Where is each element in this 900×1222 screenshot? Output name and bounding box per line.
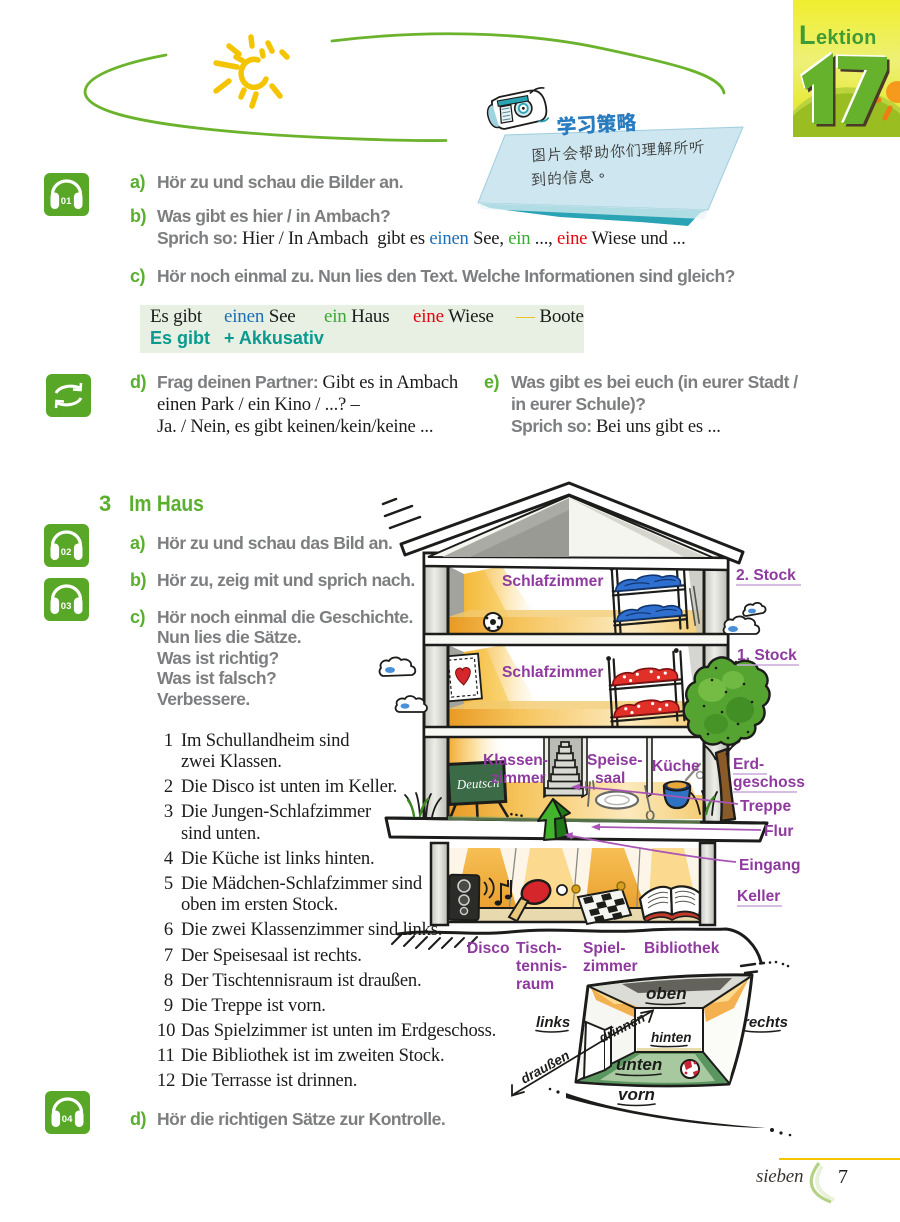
svg-text:Eingang: Eingang xyxy=(739,857,801,874)
svg-text:Klassen-: Klassen- xyxy=(483,752,548,769)
svg-text:Keller: Keller xyxy=(737,888,780,905)
svg-text:01: 01 xyxy=(61,196,72,207)
svg-text:zimmer: zimmer xyxy=(491,770,546,787)
svg-text:03: 03 xyxy=(61,601,72,612)
svg-text:oben: oben xyxy=(646,984,687,1003)
svg-text:Flur: Flur xyxy=(764,823,793,840)
svg-text:Erd-: Erd- xyxy=(733,756,764,773)
svg-text:tennis-: tennis- xyxy=(516,958,567,975)
svg-text:Schlafzimmer: Schlafzimmer xyxy=(502,664,603,681)
svg-text:Spiel-: Spiel- xyxy=(583,940,625,957)
svg-text:Disco: Disco xyxy=(467,940,509,957)
svg-text:Treppe: Treppe xyxy=(740,798,791,815)
svg-text:ektion: ektion xyxy=(816,27,877,49)
svg-text:unten: unten xyxy=(616,1055,662,1074)
svg-text:1. Stock: 1. Stock xyxy=(737,647,797,664)
svg-text:04: 04 xyxy=(62,1114,73,1125)
svg-text:Tisch-: Tisch- xyxy=(516,940,562,957)
svg-text:Schlafzimmer: Schlafzimmer xyxy=(502,573,603,590)
svg-text:rechts: rechts xyxy=(743,1014,788,1031)
svg-text:raum: raum xyxy=(516,976,554,993)
svg-text:02: 02 xyxy=(61,547,72,558)
svg-text:L: L xyxy=(799,20,816,50)
svg-text:2. Stock: 2. Stock xyxy=(736,567,796,584)
svg-text:draußen: draußen xyxy=(518,1048,572,1087)
svg-text:links: links xyxy=(536,1014,570,1031)
svg-text:geschoss: geschoss xyxy=(733,774,805,791)
svg-text:Bibliothek: Bibliothek xyxy=(644,940,720,957)
svg-text:zimmer: zimmer xyxy=(583,958,638,975)
svg-text:Küche: Küche xyxy=(652,758,700,775)
svg-text:vorn: vorn xyxy=(618,1085,655,1104)
svg-text:hinten: hinten xyxy=(651,1030,692,1045)
svg-text:saal: saal xyxy=(595,770,625,787)
svg-text:Speise-: Speise- xyxy=(587,752,642,769)
